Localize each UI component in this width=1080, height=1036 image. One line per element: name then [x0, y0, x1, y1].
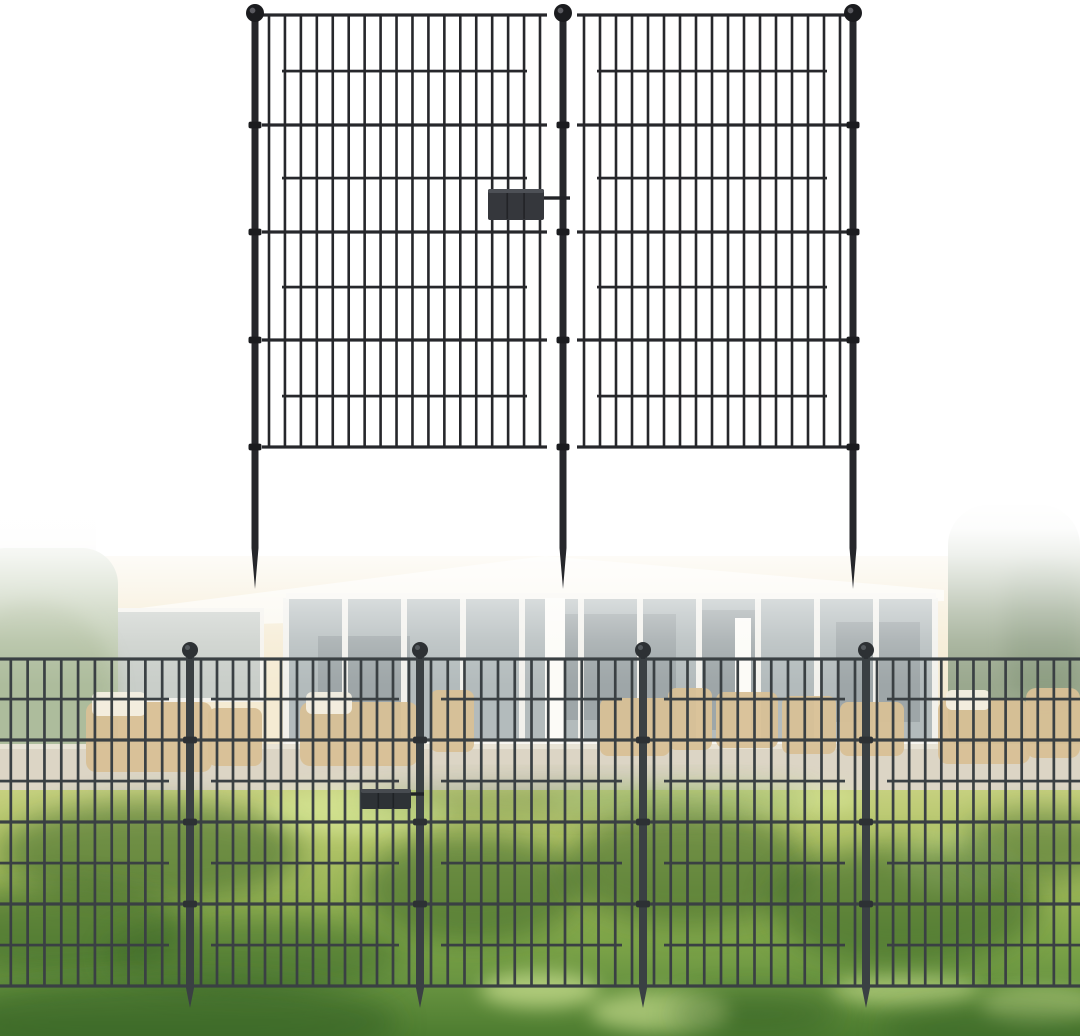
rail-clamp-collar — [249, 337, 262, 344]
post-ball-finial — [844, 4, 862, 22]
rail-clamp-collar — [847, 444, 860, 451]
fence-panel — [262, 13, 547, 448]
ground-stake-tip — [850, 548, 857, 589]
rail-clamp-collar — [557, 122, 570, 129]
fence-connector-clip — [488, 189, 570, 220]
fence-structure — [246, 4, 862, 589]
ground-stake-tip — [252, 548, 259, 589]
fence-post — [246, 4, 264, 589]
fence-posts — [246, 4, 862, 589]
fence-panel — [577, 13, 847, 448]
product-listing-image — [0, 0, 1080, 1036]
fence-post — [844, 4, 862, 589]
fence-post — [554, 4, 572, 589]
rail-clamp-collar — [249, 444, 262, 451]
rail-clamp-collar — [847, 337, 860, 344]
rail-clamp-collar — [847, 229, 860, 236]
ground-stake-tip — [560, 548, 567, 589]
rail-clamp-collar — [557, 444, 570, 451]
rail-clamp-collar — [249, 229, 262, 236]
post-ball-finial — [554, 4, 572, 22]
post-ball-finial — [246, 4, 264, 22]
rail-clamp-collar — [847, 122, 860, 129]
rail-clamp-collar — [557, 337, 570, 344]
fence-panels-product-render — [0, 0, 1080, 1036]
rail-clamp-collar — [557, 229, 570, 236]
rail-clamp-collar — [249, 122, 262, 129]
